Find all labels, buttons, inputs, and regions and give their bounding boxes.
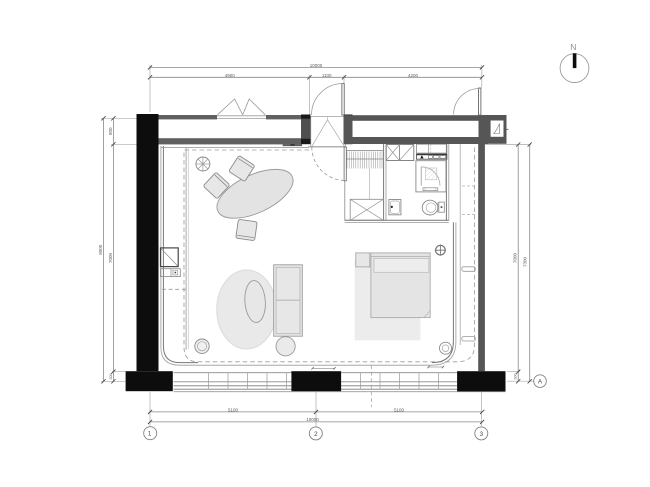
- svg-text:3: 3: [480, 431, 484, 438]
- svg-text:300: 300: [109, 374, 113, 380]
- svg-text:1: 1: [148, 431, 152, 438]
- svg-text:800: 800: [108, 127, 113, 135]
- svg-text:1100: 1100: [322, 73, 332, 78]
- svg-text:300: 300: [514, 374, 518, 380]
- svg-text:2: 2: [314, 431, 318, 438]
- svg-text:4900: 4900: [225, 73, 236, 78]
- svg-text:N: N: [570, 42, 576, 52]
- svg-text:7000: 7000: [513, 252, 518, 263]
- svg-text:7000: 7000: [108, 252, 113, 263]
- svg-text:10000: 10000: [306, 417, 319, 422]
- svg-text:10000: 10000: [310, 63, 323, 68]
- svg-text:7300: 7300: [523, 256, 528, 267]
- svg-text:4200: 4200: [408, 73, 419, 78]
- svg-text:5100: 5100: [228, 407, 239, 412]
- svg-text:8000: 8000: [98, 244, 103, 255]
- svg-text:5100: 5100: [394, 407, 405, 412]
